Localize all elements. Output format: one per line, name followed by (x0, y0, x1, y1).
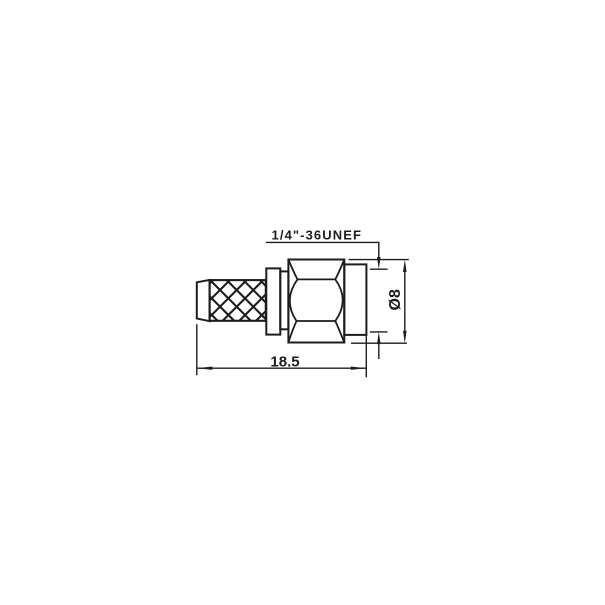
svg-text:Ø8: Ø8 (387, 289, 404, 310)
svg-text:18.5: 18.5 (270, 353, 299, 370)
svg-text:1/4"-36UNEF: 1/4"-36UNEF (272, 228, 363, 243)
